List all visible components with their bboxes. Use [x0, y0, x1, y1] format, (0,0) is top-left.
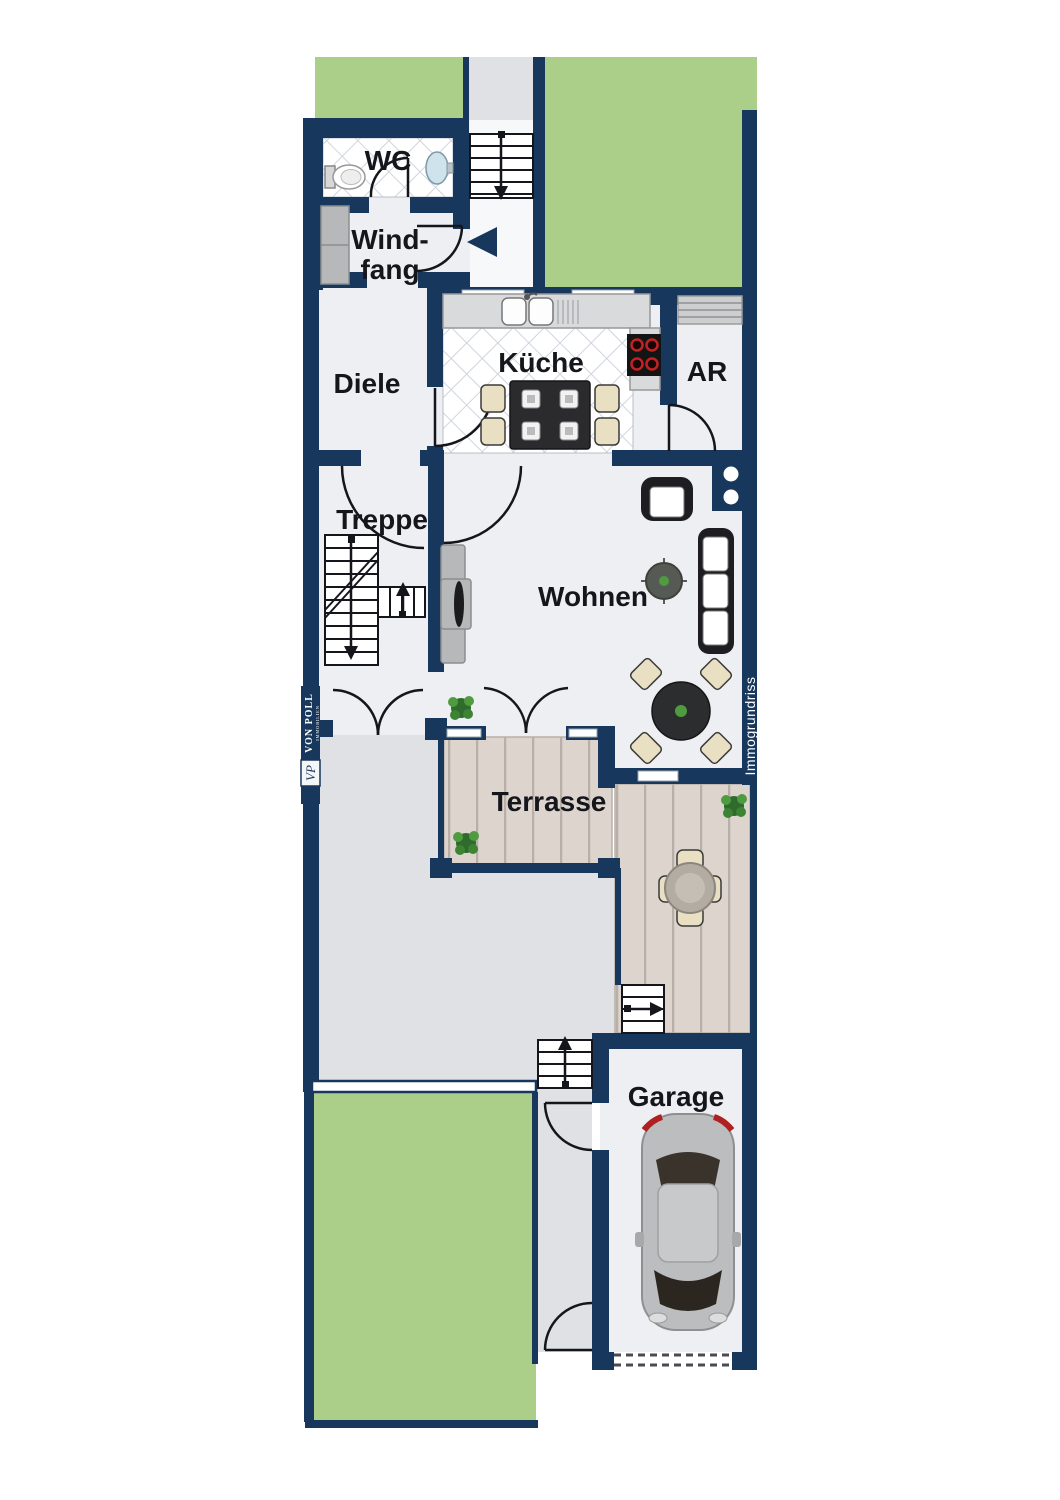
logo-immobilien-text: IMMOBILIEN — [315, 705, 320, 741]
watermark-immogrundriss: Immogrundriss — [742, 676, 758, 775]
plant-icon — [448, 696, 474, 720]
armchair-icon — [641, 477, 693, 521]
watermark-text: Immogrundriss — [742, 676, 758, 775]
room-label-wc: WC — [365, 145, 412, 176]
plant-icon — [721, 794, 747, 818]
car-icon — [635, 1114, 741, 1330]
room-label-treppe: Treppe — [336, 504, 428, 535]
deck-stairs-icon — [622, 985, 664, 1033]
room-label-terrasse: Terrasse — [492, 786, 607, 817]
entrance-steps-icon — [470, 131, 533, 200]
logo-vonpoll-text: VON POLL — [304, 693, 315, 753]
room-label-diele: Diele — [334, 368, 401, 399]
stove-icon — [627, 334, 661, 376]
room-label-ar: AR — [687, 356, 727, 387]
garden-top-left — [315, 57, 467, 120]
garage-door-icon — [614, 1352, 732, 1368]
floor-plan: WC Wind- fang Diele Küche AR Treppe Wohn… — [0, 0, 1060, 1500]
toilet-icon — [325, 165, 365, 189]
room-label-kueche: Küche — [498, 347, 584, 378]
shelf-icon — [678, 296, 742, 324]
wardrobe-icon — [321, 206, 349, 284]
patio-fence — [312, 1081, 536, 1092]
room-label-garage: Garage — [628, 1081, 725, 1112]
logo-vonpoll: VON POLL IMMOBILIEN VP — [301, 686, 320, 804]
logo-monogram-text: VP — [303, 765, 318, 781]
path-stairs-icon — [538, 1036, 592, 1088]
room-label-wohnen: Wohnen — [538, 581, 648, 612]
room-label-windfang-line1: Wind- — [351, 224, 429, 255]
room-label-windfang-line2: fang — [360, 254, 419, 285]
sofa-icon — [698, 528, 734, 654]
garden-bottom — [310, 1092, 536, 1422]
plant-icon — [453, 831, 479, 855]
garden-top-right — [545, 57, 757, 289]
floor-plan-page: WC Wind- fang Diele Küche AR Treppe Wohn… — [0, 0, 1060, 1500]
